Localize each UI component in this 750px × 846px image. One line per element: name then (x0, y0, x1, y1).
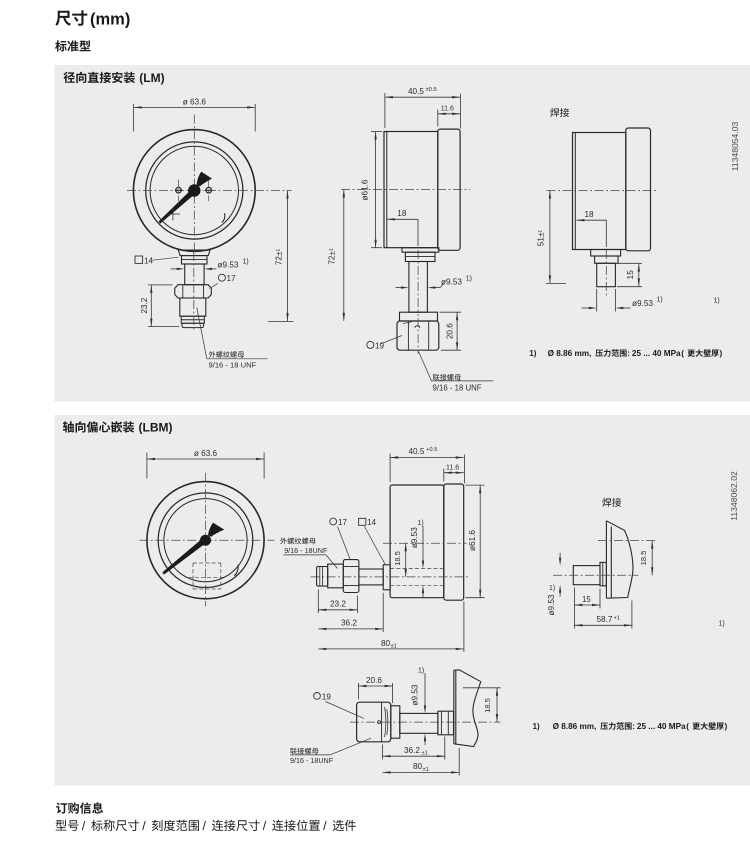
svg-text:1): 1) (418, 520, 424, 527)
svg-text:15: 15 (626, 270, 635, 280)
svg-text:(: ( (686, 722, 689, 731)
svg-text:±1: ±1 (422, 751, 428, 757)
svg-text:1): 1) (529, 349, 537, 358)
svg-text:1): 1) (243, 259, 249, 266)
svg-text:14: 14 (367, 518, 377, 527)
svg-text:15: 15 (582, 595, 591, 604)
svg-text:+0.5: +0.5 (426, 447, 437, 453)
svg-text:20.6: 20.6 (366, 676, 382, 685)
svg-text:23.2: 23.2 (330, 600, 346, 609)
svg-text:18.5: 18.5 (483, 698, 492, 713)
svg-text:58.7: 58.7 (597, 615, 613, 624)
svg-text:9/16 - 18UNF: 9/16 - 18UNF (290, 756, 334, 765)
svg-text:±0.5: ±0.5 (426, 87, 437, 93)
svg-text:1): 1) (466, 276, 472, 283)
svg-text:20.6: 20.6 (445, 323, 454, 339)
svg-text:18.5: 18.5 (393, 551, 402, 566)
svg-text:): ) (725, 722, 728, 731)
svg-text:(LBM): (LBM) (139, 421, 173, 435)
svg-text:36.2: 36.2 (404, 746, 420, 755)
svg-text:±1: ±1 (391, 644, 397, 650)
svg-text:/: / (142, 819, 146, 833)
svg-text:/: / (82, 819, 86, 833)
svg-text:11.6: 11.6 (441, 106, 454, 113)
svg-text:ø9.53: ø9.53 (411, 684, 420, 705)
svg-text:/: / (263, 819, 267, 833)
svg-text:14: 14 (144, 256, 154, 265)
svg-text:17: 17 (227, 274, 237, 283)
svg-text:72±¹: 72±¹ (275, 249, 284, 266)
svg-text:1): 1) (657, 297, 663, 304)
svg-text:ø61.6: ø61.6 (468, 530, 477, 551)
svg-text:9/16 - 18 UNF: 9/16 - 18 UNF (433, 383, 482, 392)
svg-text:17: 17 (338, 518, 348, 527)
svg-text:25 ... 40 MPa: 25 ... 40 MPa (632, 349, 681, 358)
svg-text:/: / (323, 819, 327, 833)
svg-text:ø9.53: ø9.53 (441, 278, 462, 287)
svg-text:ø9.53: ø9.53 (632, 299, 653, 308)
svg-text:11.6: 11.6 (446, 464, 459, 471)
svg-text:±1: ±1 (423, 767, 429, 773)
svg-text:ø 63.6: ø 63.6 (194, 449, 218, 458)
svg-text:ø61.6: ø61.6 (361, 179, 370, 200)
svg-text:1): 1) (549, 585, 555, 592)
svg-text:23.2: 23.2 (140, 297, 149, 313)
svg-text:(LM): (LM) (139, 71, 164, 85)
svg-text:Ø 8.86 mm,: Ø 8.86 mm, (548, 349, 592, 358)
svg-text:ø9.53: ø9.53 (410, 527, 419, 548)
svg-text::: : (632, 722, 635, 731)
svg-text:): ) (720, 349, 723, 358)
svg-text:ø9.53: ø9.53 (218, 260, 239, 269)
svg-text:40.5: 40.5 (408, 87, 424, 96)
svg-text:Ø 8.86 mm,: Ø 8.86 mm, (553, 722, 597, 731)
svg-text:18: 18 (585, 210, 595, 219)
svg-text:51±¹: 51±¹ (537, 230, 546, 247)
svg-text:9/16 - 18 UNF: 9/16 - 18 UNF (209, 360, 257, 369)
svg-text:(: ( (681, 349, 684, 358)
svg-text:ø9.53: ø9.53 (547, 594, 556, 615)
svg-text:1): 1) (418, 667, 424, 674)
svg-text:+1: +1 (614, 616, 621, 622)
svg-text:18: 18 (397, 209, 407, 218)
svg-text:80: 80 (413, 762, 423, 771)
svg-text:11348062.02: 11348062.02 (729, 471, 739, 521)
svg-text:36.2: 36.2 (341, 619, 357, 628)
svg-text:1): 1) (714, 298, 720, 305)
svg-text:ø 63.6: ø 63.6 (183, 97, 207, 106)
svg-text:40.5: 40.5 (409, 447, 425, 456)
svg-text:/: / (203, 819, 207, 833)
svg-text:72±¹: 72±¹ (328, 248, 337, 265)
svg-text:25 ... 40 MPa: 25 ... 40 MPa (637, 722, 686, 731)
svg-text:(mm): (mm) (90, 10, 130, 28)
svg-text:1): 1) (533, 722, 541, 731)
svg-text:80: 80 (381, 639, 391, 648)
svg-text:18.5: 18.5 (639, 551, 648, 566)
svg-text:19: 19 (322, 692, 332, 701)
svg-text:9/16 - 18UNF: 9/16 - 18UNF (284, 546, 328, 555)
svg-text:1): 1) (719, 621, 725, 628)
svg-text::: : (627, 349, 630, 358)
svg-text:11348054.03: 11348054.03 (730, 122, 740, 172)
